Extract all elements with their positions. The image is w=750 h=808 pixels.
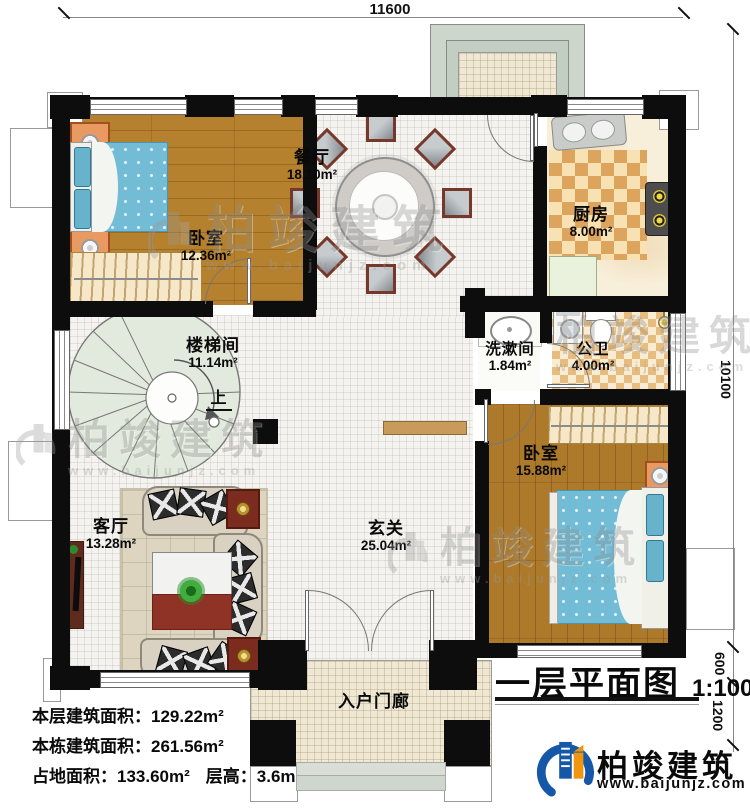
window [54, 330, 70, 430]
room-area: 15.88m² [494, 463, 588, 478]
up-text: 上 [206, 390, 232, 411]
room-area: 12.36m² [156, 248, 256, 263]
column [50, 666, 90, 690]
window [100, 672, 250, 688]
room-label-living: 客厅 13.28m² [66, 517, 156, 551]
platform-left-top-a [10, 128, 54, 208]
room-label-bedroom1: 卧室 12.36m² [156, 229, 256, 263]
wall-dining-kitchen [533, 146, 547, 310]
dining-chair [442, 188, 472, 218]
stat-label: 层高： [206, 767, 257, 786]
room-label-bathroom: 公卫 4.00m² [552, 341, 634, 373]
stat-value: 133.60m² [117, 767, 190, 786]
room-label-dining: 餐厅 18.10m² [268, 148, 356, 182]
stat-label: 本栋建筑面积： [32, 737, 151, 756]
room-label-bedroom2: 卧室 15.88m² [494, 444, 588, 478]
wall-kitchen-bath [460, 296, 686, 312]
burner [653, 190, 666, 203]
floor-plan-canvas: 卧室 12.36m² 餐厅 18.10m² 厨房 8.00m² 楼梯间 11.1… [0, 0, 750, 808]
room-label-porch: 入户门廊 [308, 692, 440, 711]
wall-bedroom2-west [475, 441, 489, 647]
console-table [383, 421, 467, 435]
window [670, 313, 686, 391]
title-underline-thick [495, 697, 699, 701]
stat-line: 占地面积：133.60m²层高：3.6m [32, 762, 296, 792]
wall-bed1-south-b [253, 301, 316, 317]
stat-line: 本层建筑面积：129.22m² [32, 702, 296, 732]
dining-chair [366, 264, 396, 294]
room-name: 餐厅 [268, 148, 356, 167]
column [185, 95, 234, 117]
bed-footboard [549, 492, 558, 624]
bed-sheet-fold [614, 490, 642, 624]
room-area: 18.10m² [268, 167, 356, 182]
wall-washroom-west [465, 288, 485, 338]
stat-value: 129.22m² [151, 707, 224, 726]
stair-up-label: 上 [206, 390, 232, 411]
wall-wash-bath [540, 311, 552, 343]
sofa-cushion [147, 488, 179, 520]
wall-bed1-dining [303, 110, 317, 310]
hall-floor-strip [316, 308, 473, 317]
room-label-washroom: 洗漱间 1.84m² [466, 341, 554, 373]
room-name: 洗漱间 [466, 341, 554, 358]
column [50, 95, 90, 119]
stat-label: 本层建筑面积： [32, 707, 151, 726]
stat-line: 本栋建筑面积：261.56m² [32, 732, 296, 762]
pillow [646, 494, 664, 536]
window [567, 99, 644, 115]
sink-basin [590, 119, 616, 141]
room-area: 11.14m² [166, 355, 260, 370]
pillow [74, 189, 91, 229]
dimension-right-value: 10100 [718, 360, 734, 399]
pillow [74, 147, 91, 187]
door-leaf-bedroom2 [484, 399, 488, 443]
wardrobe [548, 406, 671, 444]
porch-column [444, 720, 490, 766]
door-leaf-bathroom [547, 384, 590, 388]
washer-door [560, 319, 580, 339]
stat-label: 占地面积： [32, 767, 117, 786]
room-name: 入户门廊 [308, 692, 440, 711]
washing-machine [553, 309, 583, 344]
room-name: 厨房 [548, 205, 634, 224]
column-freestanding [253, 419, 278, 444]
room-name: 玄关 [338, 519, 434, 538]
porch-column-base [444, 766, 492, 802]
column [642, 95, 686, 119]
sink-basin [561, 121, 587, 143]
porch-step [296, 775, 446, 791]
title-scale: 1:100 [692, 675, 750, 702]
brand-logo-icon [536, 736, 594, 802]
platform-left-mid [8, 441, 54, 521]
stat-value: 3.6m [257, 767, 296, 786]
door-leaf-kitchen [534, 113, 538, 147]
column [356, 95, 398, 117]
door-leaf-bedroom1 [247, 258, 251, 304]
washer-panel [556, 312, 580, 316]
room-name: 公卫 [552, 341, 634, 358]
room-name: 楼梯间 [166, 336, 260, 355]
dining-table-center [372, 194, 398, 220]
plant [176, 576, 206, 606]
entry-door-leaf-right [430, 590, 434, 651]
room-area: 13.28m² [66, 536, 156, 551]
entry-column-right [429, 640, 477, 690]
burner [653, 214, 666, 227]
column [281, 95, 315, 117]
wall-bath-south [540, 389, 686, 405]
room-area: 4.00m² [552, 358, 634, 373]
area-stats: 本层建筑面积：129.22m² 本栋建筑面积：261.56m² 占地面积：133… [32, 702, 296, 792]
room-name: 客厅 [66, 517, 156, 536]
basin-drain [507, 327, 512, 332]
room-area: 8.00m² [548, 224, 634, 239]
room-label-foyer: 玄关 25.04m² [338, 519, 434, 553]
pillow [646, 540, 664, 582]
room-label-stairwell: 楼梯间 11.14m² [166, 336, 260, 370]
side-table [226, 489, 260, 529]
title-underline-thin [495, 704, 699, 705]
room-name: 卧室 [156, 229, 256, 248]
room-label-kitchen: 厨房 8.00m² [548, 205, 634, 239]
window [315, 99, 358, 115]
entry-door-leaf-left [305, 590, 309, 651]
window [90, 99, 187, 115]
brand-url: www.baijunjz.com [597, 776, 746, 792]
stat-value: 261.56m² [151, 737, 224, 756]
wall-bed1-south-a [70, 301, 213, 317]
window [234, 99, 283, 115]
room-area: 1.84m² [466, 358, 554, 373]
room-name: 卧室 [494, 444, 588, 463]
room-area: 25.04m² [338, 538, 434, 553]
platform-right-bottom [686, 548, 735, 630]
entry-column-left [258, 640, 307, 690]
dimension-top-value: 11600 [330, 1, 450, 18]
